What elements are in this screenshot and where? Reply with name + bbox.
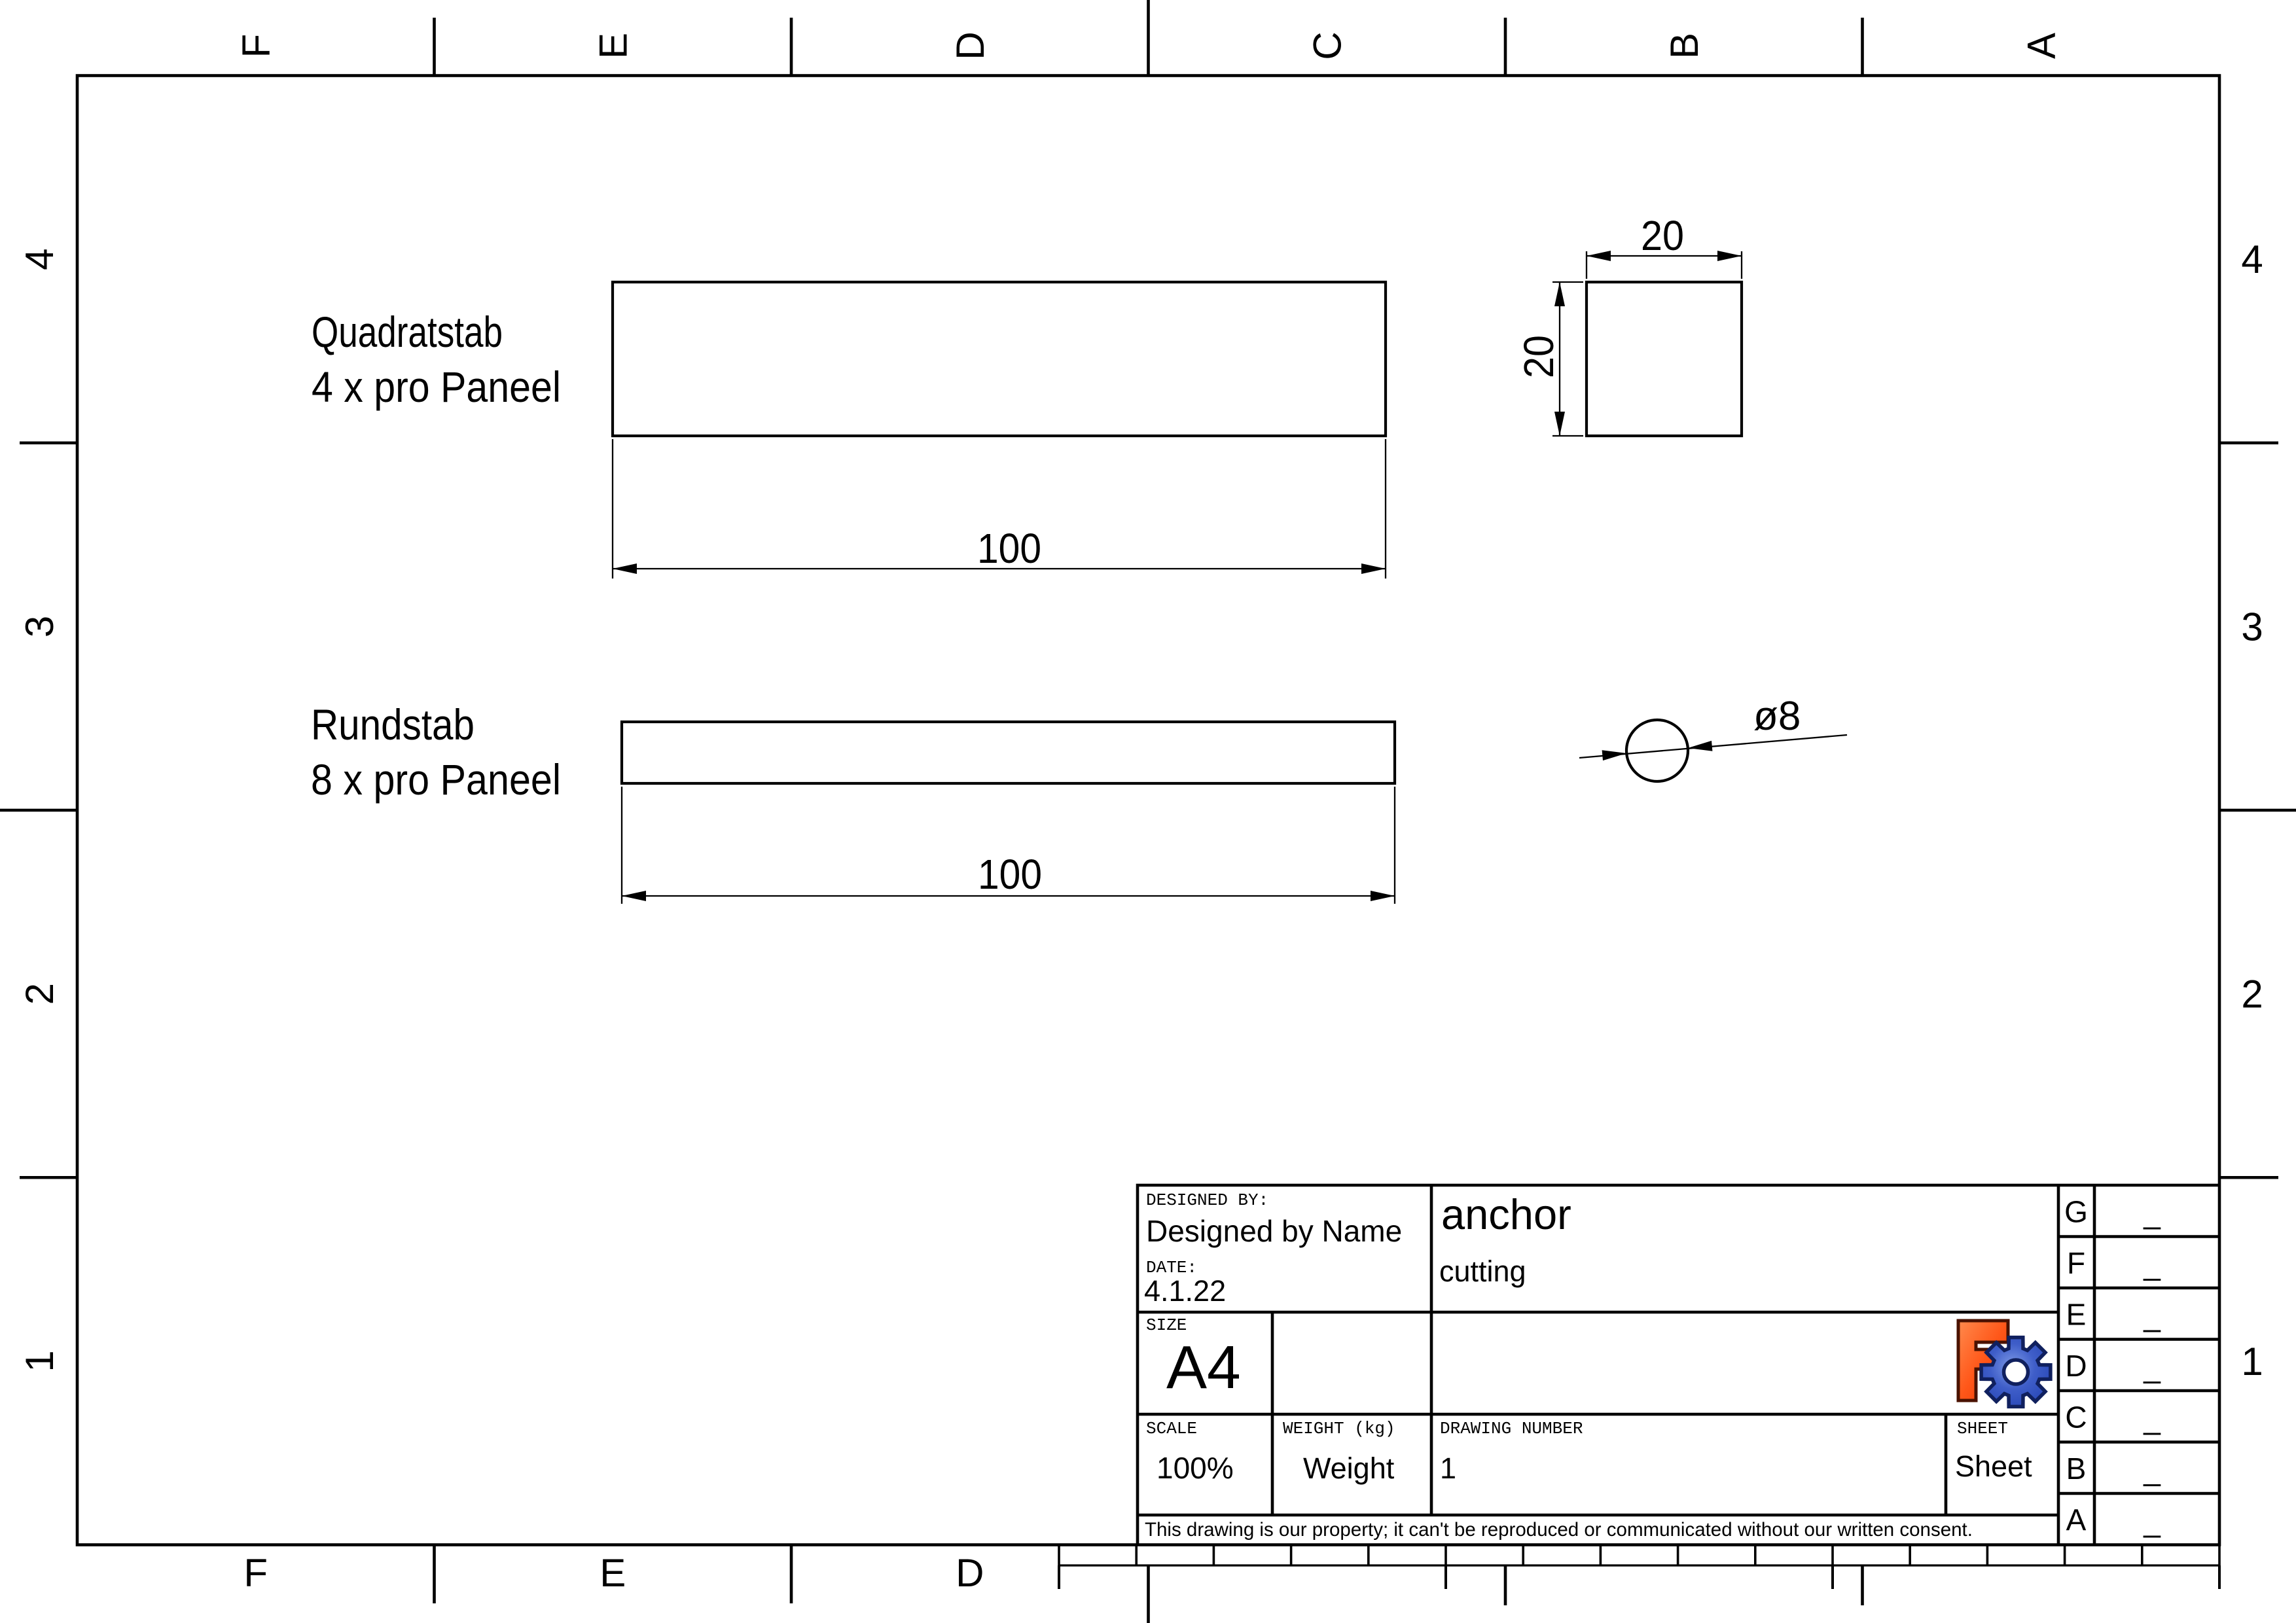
svg-text:3: 3: [2241, 605, 2263, 649]
svg-text:SCALE: SCALE: [1146, 1419, 1197, 1438]
svg-text:WEIGHT (kg): WEIGHT (kg): [1283, 1419, 1395, 1438]
svg-text:Sheet: Sheet: [1955, 1450, 2032, 1483]
svg-text:4: 4: [18, 248, 62, 270]
svg-text:Designed by Name: Designed by Name: [1146, 1214, 1402, 1248]
svg-text:2: 2: [18, 983, 62, 1005]
svg-text:DESIGNED BY:: DESIGNED BY:: [1146, 1190, 1268, 1210]
svg-text:4 x pro Paneel: 4 x pro Paneel: [312, 363, 561, 411]
svg-text:C: C: [1305, 31, 1349, 60]
svg-text:_: _: [2143, 1299, 2161, 1333]
svg-text:anchor: anchor: [1441, 1190, 1571, 1238]
svg-text:E: E: [2066, 1298, 2087, 1332]
svg-text:F: F: [243, 1551, 268, 1595]
svg-text:SIZE: SIZE: [1146, 1315, 1187, 1335]
svg-text:A: A: [2066, 1503, 2087, 1537]
svg-text:_: _: [2143, 1402, 2161, 1436]
svg-text:_: _: [2143, 1247, 2161, 1281]
svg-text:4: 4: [2241, 238, 2263, 281]
svg-text:SHEET: SHEET: [1957, 1419, 2008, 1438]
svg-text:4.1.22: 4.1.22: [1144, 1274, 1226, 1308]
svg-text:D: D: [956, 1551, 984, 1595]
svg-text:100: 100: [977, 525, 1041, 572]
svg-text:F: F: [234, 34, 278, 58]
svg-text:_: _: [2143, 1505, 2161, 1539]
svg-text:_: _: [2143, 1196, 2161, 1230]
svg-text:Weight: Weight: [1303, 1452, 1395, 1485]
svg-text:1: 1: [2241, 1340, 2263, 1383]
svg-text:E: E: [591, 33, 635, 59]
svg-text:20: 20: [1641, 212, 1684, 259]
svg-text:_: _: [2143, 1453, 2161, 1487]
svg-text:Rundstab: Rundstab: [311, 700, 475, 749]
svg-text:3: 3: [18, 616, 62, 637]
svg-text:C: C: [2065, 1400, 2087, 1435]
svg-text:2: 2: [2241, 972, 2263, 1016]
svg-text:F: F: [2067, 1246, 2085, 1280]
svg-text:100: 100: [978, 851, 1042, 898]
svg-text:This drawing is our property;: This drawing is our property; it can't b…: [1145, 1519, 1973, 1541]
svg-text:20: 20: [1515, 335, 1562, 378]
svg-text:ø8: ø8: [1753, 694, 1801, 739]
svg-text:D: D: [948, 31, 992, 60]
svg-text:8 x pro Paneel: 8 x pro Paneel: [311, 755, 561, 804]
svg-text:1: 1: [18, 1350, 62, 1372]
svg-text:100%: 100%: [1157, 1451, 1234, 1485]
svg-text:E: E: [600, 1551, 626, 1595]
svg-text:A4: A4: [1166, 1333, 1241, 1401]
svg-text:D: D: [2065, 1349, 2087, 1383]
svg-text:cutting: cutting: [1439, 1255, 1526, 1288]
svg-text:DRAWING NUMBER: DRAWING NUMBER: [1440, 1419, 1583, 1438]
svg-text:Quadratstab: Quadratstab: [312, 308, 503, 356]
svg-text:A: A: [2019, 33, 2063, 59]
svg-text:_: _: [2143, 1350, 2161, 1384]
svg-text:G: G: [2064, 1195, 2088, 1229]
svg-text:B: B: [2066, 1452, 2087, 1486]
svg-text:1: 1: [1440, 1452, 1456, 1485]
svg-text:B: B: [1662, 33, 1706, 59]
